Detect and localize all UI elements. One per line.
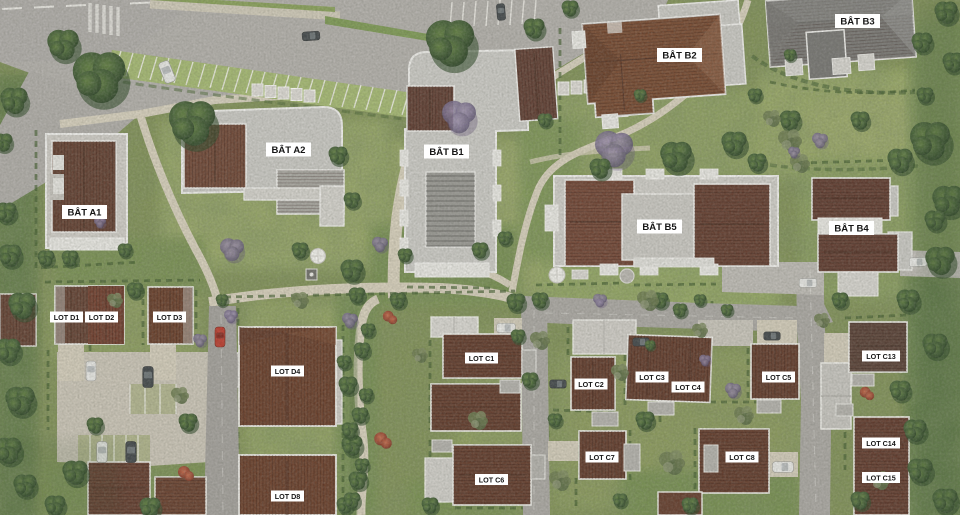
svg-text:LOT D8: LOT D8	[275, 492, 301, 501]
svg-text:BÂT B5: BÂT B5	[642, 221, 677, 233]
svg-text:BÂT B3: BÂT B3	[840, 16, 874, 28]
svg-text:LOT C1: LOT C1	[469, 354, 495, 363]
svg-text:LOT D3: LOT D3	[157, 313, 183, 322]
svg-text:BÂT B1: BÂT B1	[429, 146, 464, 158]
svg-text:LOT C4: LOT C4	[675, 383, 701, 392]
svg-text:BÂT B4: BÂT B4	[834, 223, 869, 235]
svg-text:LOT C13: LOT C13	[866, 352, 896, 361]
svg-text:LOT C14: LOT C14	[866, 439, 896, 448]
svg-text:LOT D2: LOT D2	[89, 313, 115, 322]
svg-text:BÂT A1: BÂT A1	[68, 207, 103, 219]
svg-text:LOT D4: LOT D4	[275, 367, 301, 376]
svg-text:LOT C5: LOT C5	[766, 373, 792, 382]
svg-text:LOT C2: LOT C2	[578, 380, 604, 389]
svg-text:LOT C3: LOT C3	[639, 373, 665, 382]
svg-text:LOT D1: LOT D1	[54, 313, 80, 322]
svg-text:LOT C7: LOT C7	[589, 453, 615, 462]
svg-text:LOT C6: LOT C6	[479, 475, 505, 484]
svg-text:BÂT B2: BÂT B2	[662, 50, 696, 62]
svg-text:LOT C8: LOT C8	[729, 453, 755, 462]
svg-text:LOT C15: LOT C15	[866, 473, 896, 482]
svg-text:BÂT A2: BÂT A2	[272, 144, 306, 156]
